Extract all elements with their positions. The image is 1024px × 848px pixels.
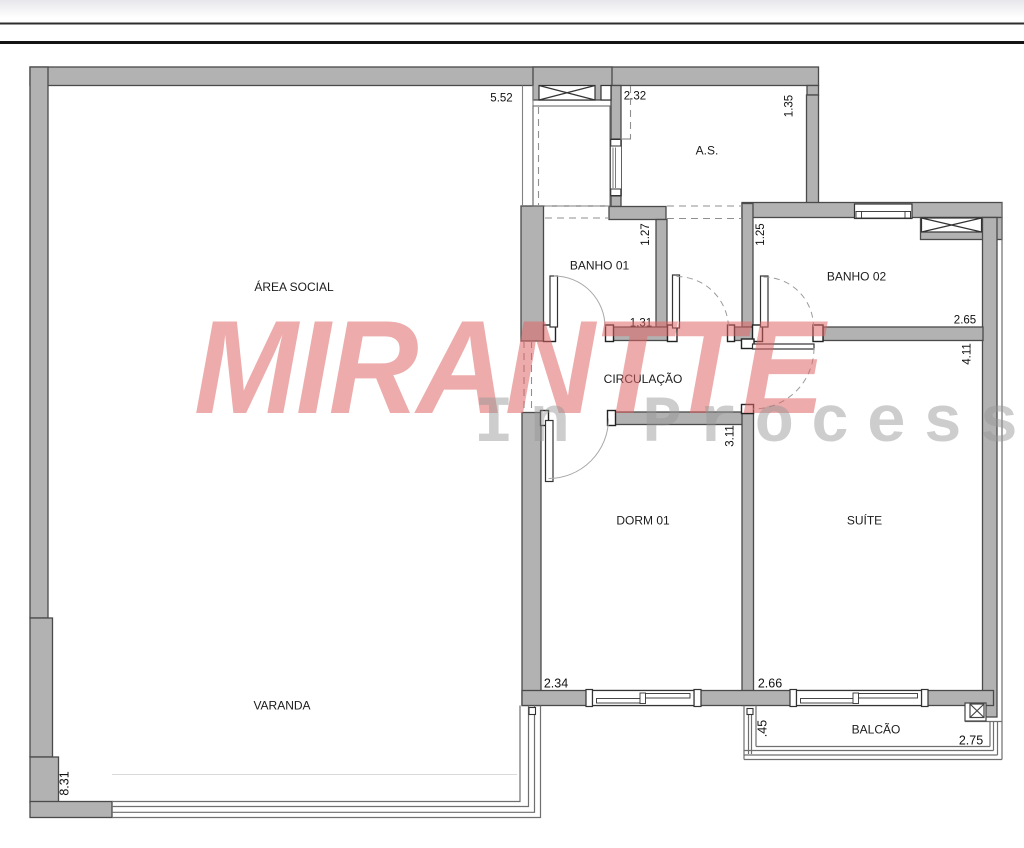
- svg-text:.45: .45: [756, 720, 770, 737]
- svg-text:4.11: 4.11: [962, 343, 974, 365]
- svg-text:2.75: 2.75: [959, 734, 983, 748]
- svg-text:2.32: 2.32: [624, 91, 646, 103]
- svg-text:BANHO 01: BANHO 01: [570, 259, 630, 273]
- svg-text:VARANDA: VARANDA: [253, 699, 310, 713]
- svg-text:1.27: 1.27: [640, 223, 652, 245]
- svg-text:A.S.: A.S.: [696, 144, 719, 158]
- svg-text:SUÍTE: SUÍTE: [847, 513, 882, 528]
- svg-text:BALCÃO: BALCÃO: [852, 723, 901, 737]
- svg-text:2.34: 2.34: [544, 677, 568, 691]
- svg-text:DORM 01: DORM 01: [616, 514, 670, 528]
- svg-text:1.25: 1.25: [755, 223, 767, 245]
- svg-text:5.52: 5.52: [490, 93, 512, 105]
- svg-text:2.65: 2.65: [954, 315, 976, 327]
- svg-text:BANHO 02: BANHO 02: [827, 270, 887, 284]
- svg-text:1.35: 1.35: [784, 95, 796, 117]
- svg-text:2.66: 2.66: [758, 677, 782, 691]
- svg-text:8.31: 8.31: [58, 771, 72, 795]
